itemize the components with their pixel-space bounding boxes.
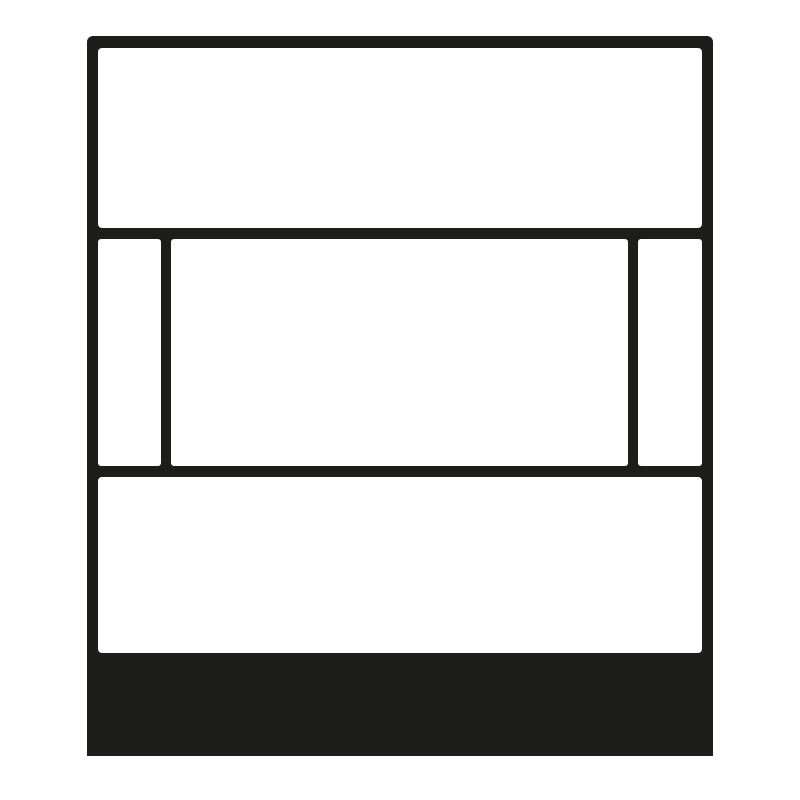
middle-window-left-segment <box>98 239 161 466</box>
middle-window-right-segment <box>638 239 702 466</box>
top-panel <box>98 48 702 228</box>
bottom-panel <box>98 477 702 653</box>
device-pictogram <box>87 36 713 756</box>
middle-window-center-segment <box>171 239 628 466</box>
canvas-background <box>0 0 800 800</box>
base-strip <box>87 653 713 756</box>
